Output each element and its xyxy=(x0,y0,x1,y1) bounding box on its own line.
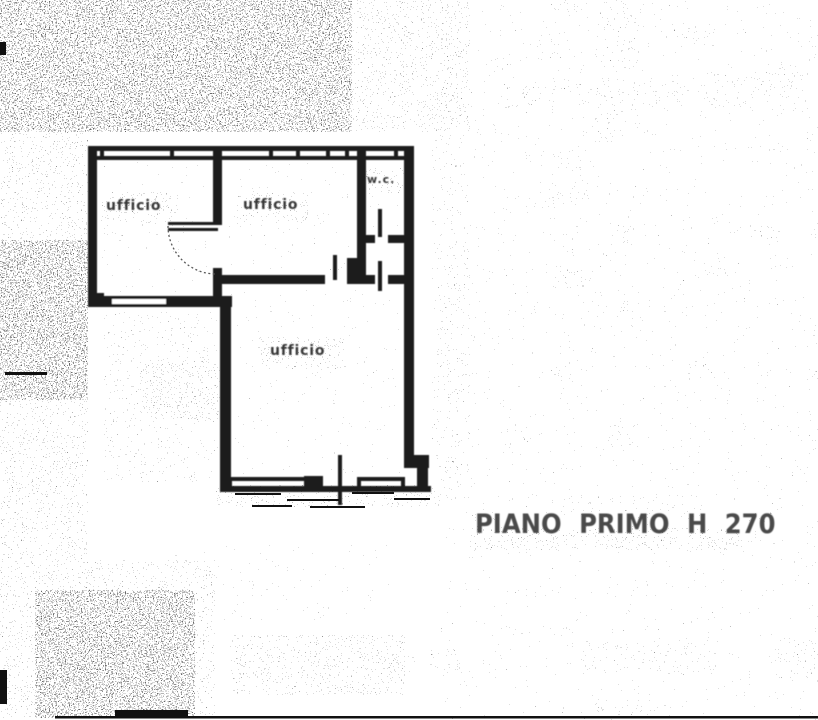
outer-wall-lower-left xyxy=(220,296,231,492)
room-label-ufficio-left: ufficio xyxy=(106,198,161,214)
wall-between-offices xyxy=(213,151,222,304)
room-label-wc: w.c. xyxy=(367,173,395,186)
wall-mid-horizontal xyxy=(88,296,232,307)
outer-wall-right xyxy=(404,146,429,490)
window-sill xyxy=(112,299,166,304)
floor-caption: PIANO PRIMO H 270 xyxy=(475,509,776,540)
door-leaf-wc xyxy=(378,209,382,237)
floorplan-drawing xyxy=(0,0,818,720)
room-label-ufficio-lower: ufficio xyxy=(270,343,325,359)
door-leaf-lower-office xyxy=(333,255,337,280)
outer-wall-bottom xyxy=(220,476,431,492)
door-leaf-exterior xyxy=(338,455,342,505)
room-label-ufficio-middle: ufficio xyxy=(243,197,298,213)
scanned-floor-plan-page: ufficio ufficio ufficio w.c. PIANO PRIMO… xyxy=(0,0,818,720)
door-leaf-corridor xyxy=(378,261,382,291)
